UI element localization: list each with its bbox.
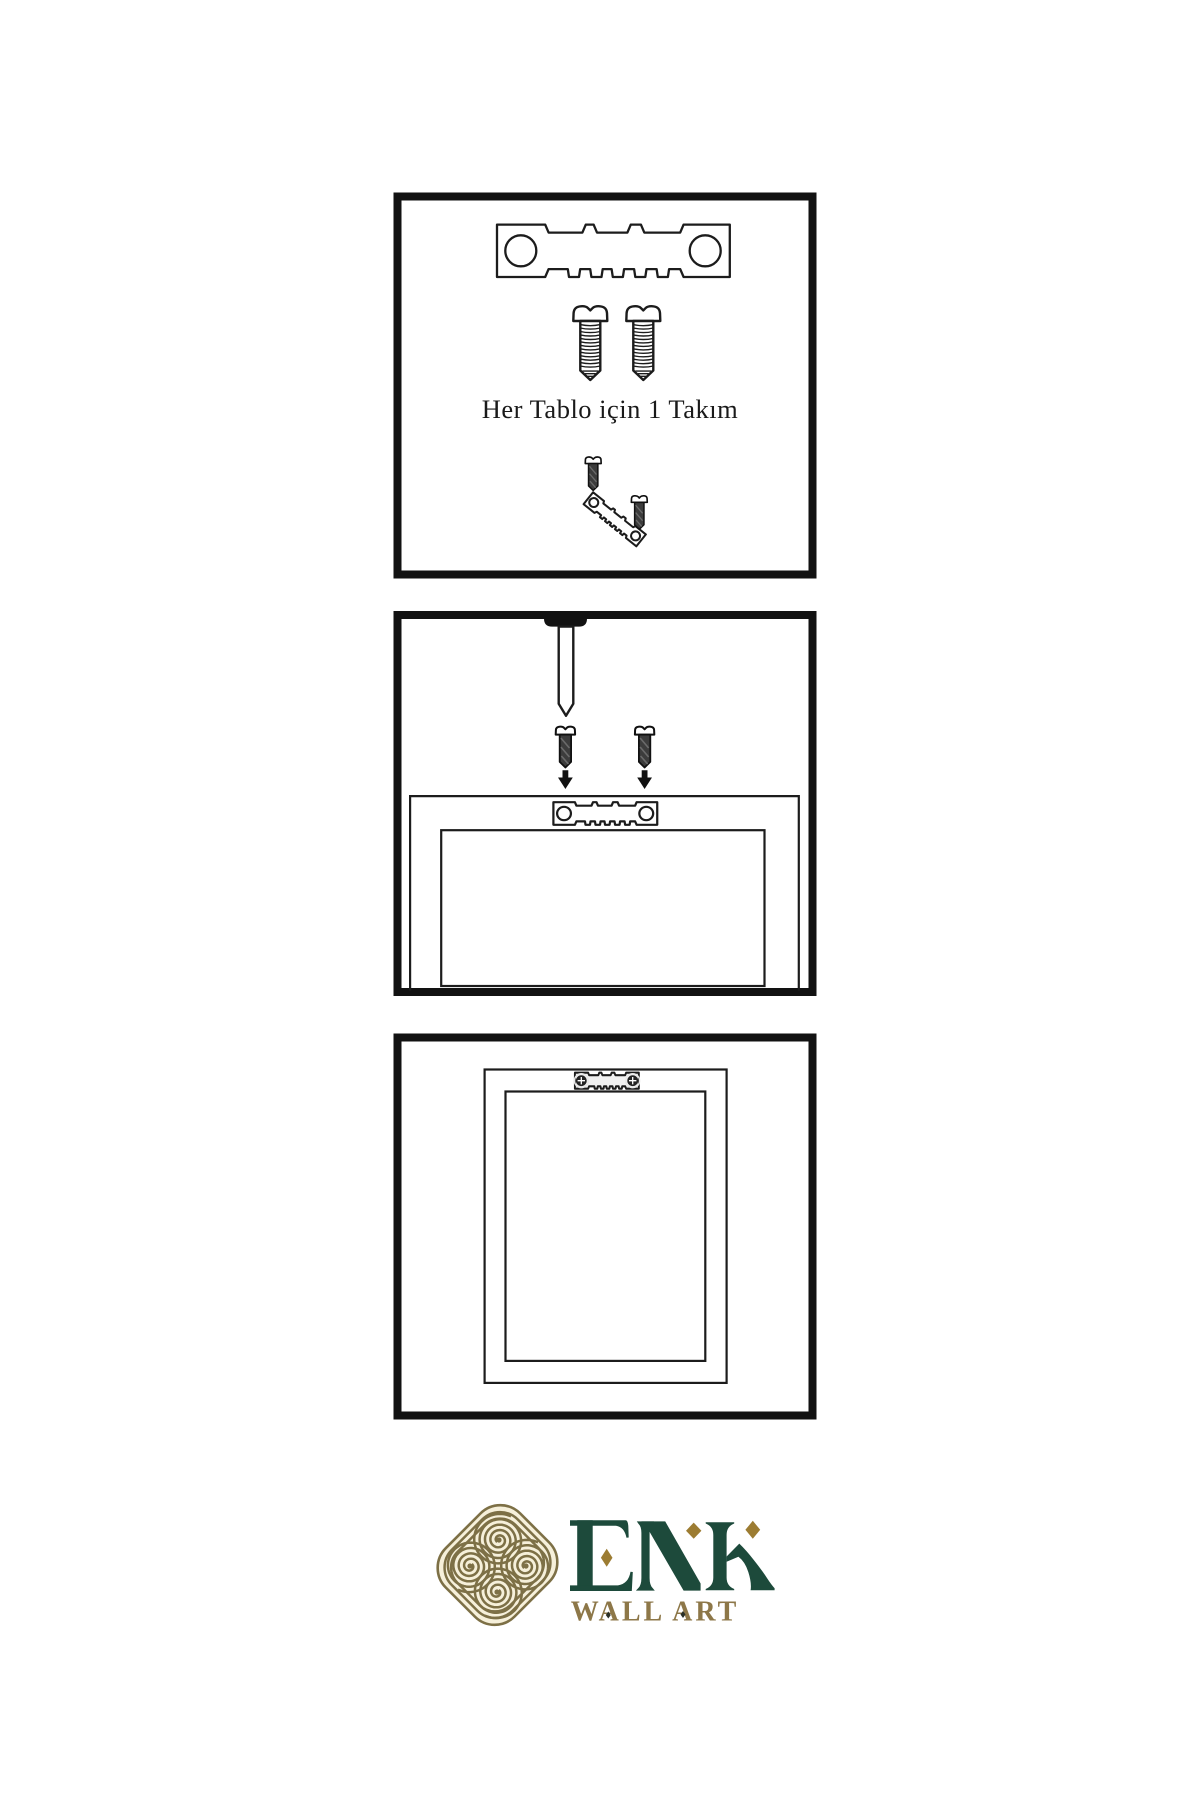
svg-text:Her Tablo için 1 Takım: Her Tablo için 1 Takım <box>482 394 739 424</box>
svg-text:WALL ART: WALL ART <box>571 1597 740 1628</box>
